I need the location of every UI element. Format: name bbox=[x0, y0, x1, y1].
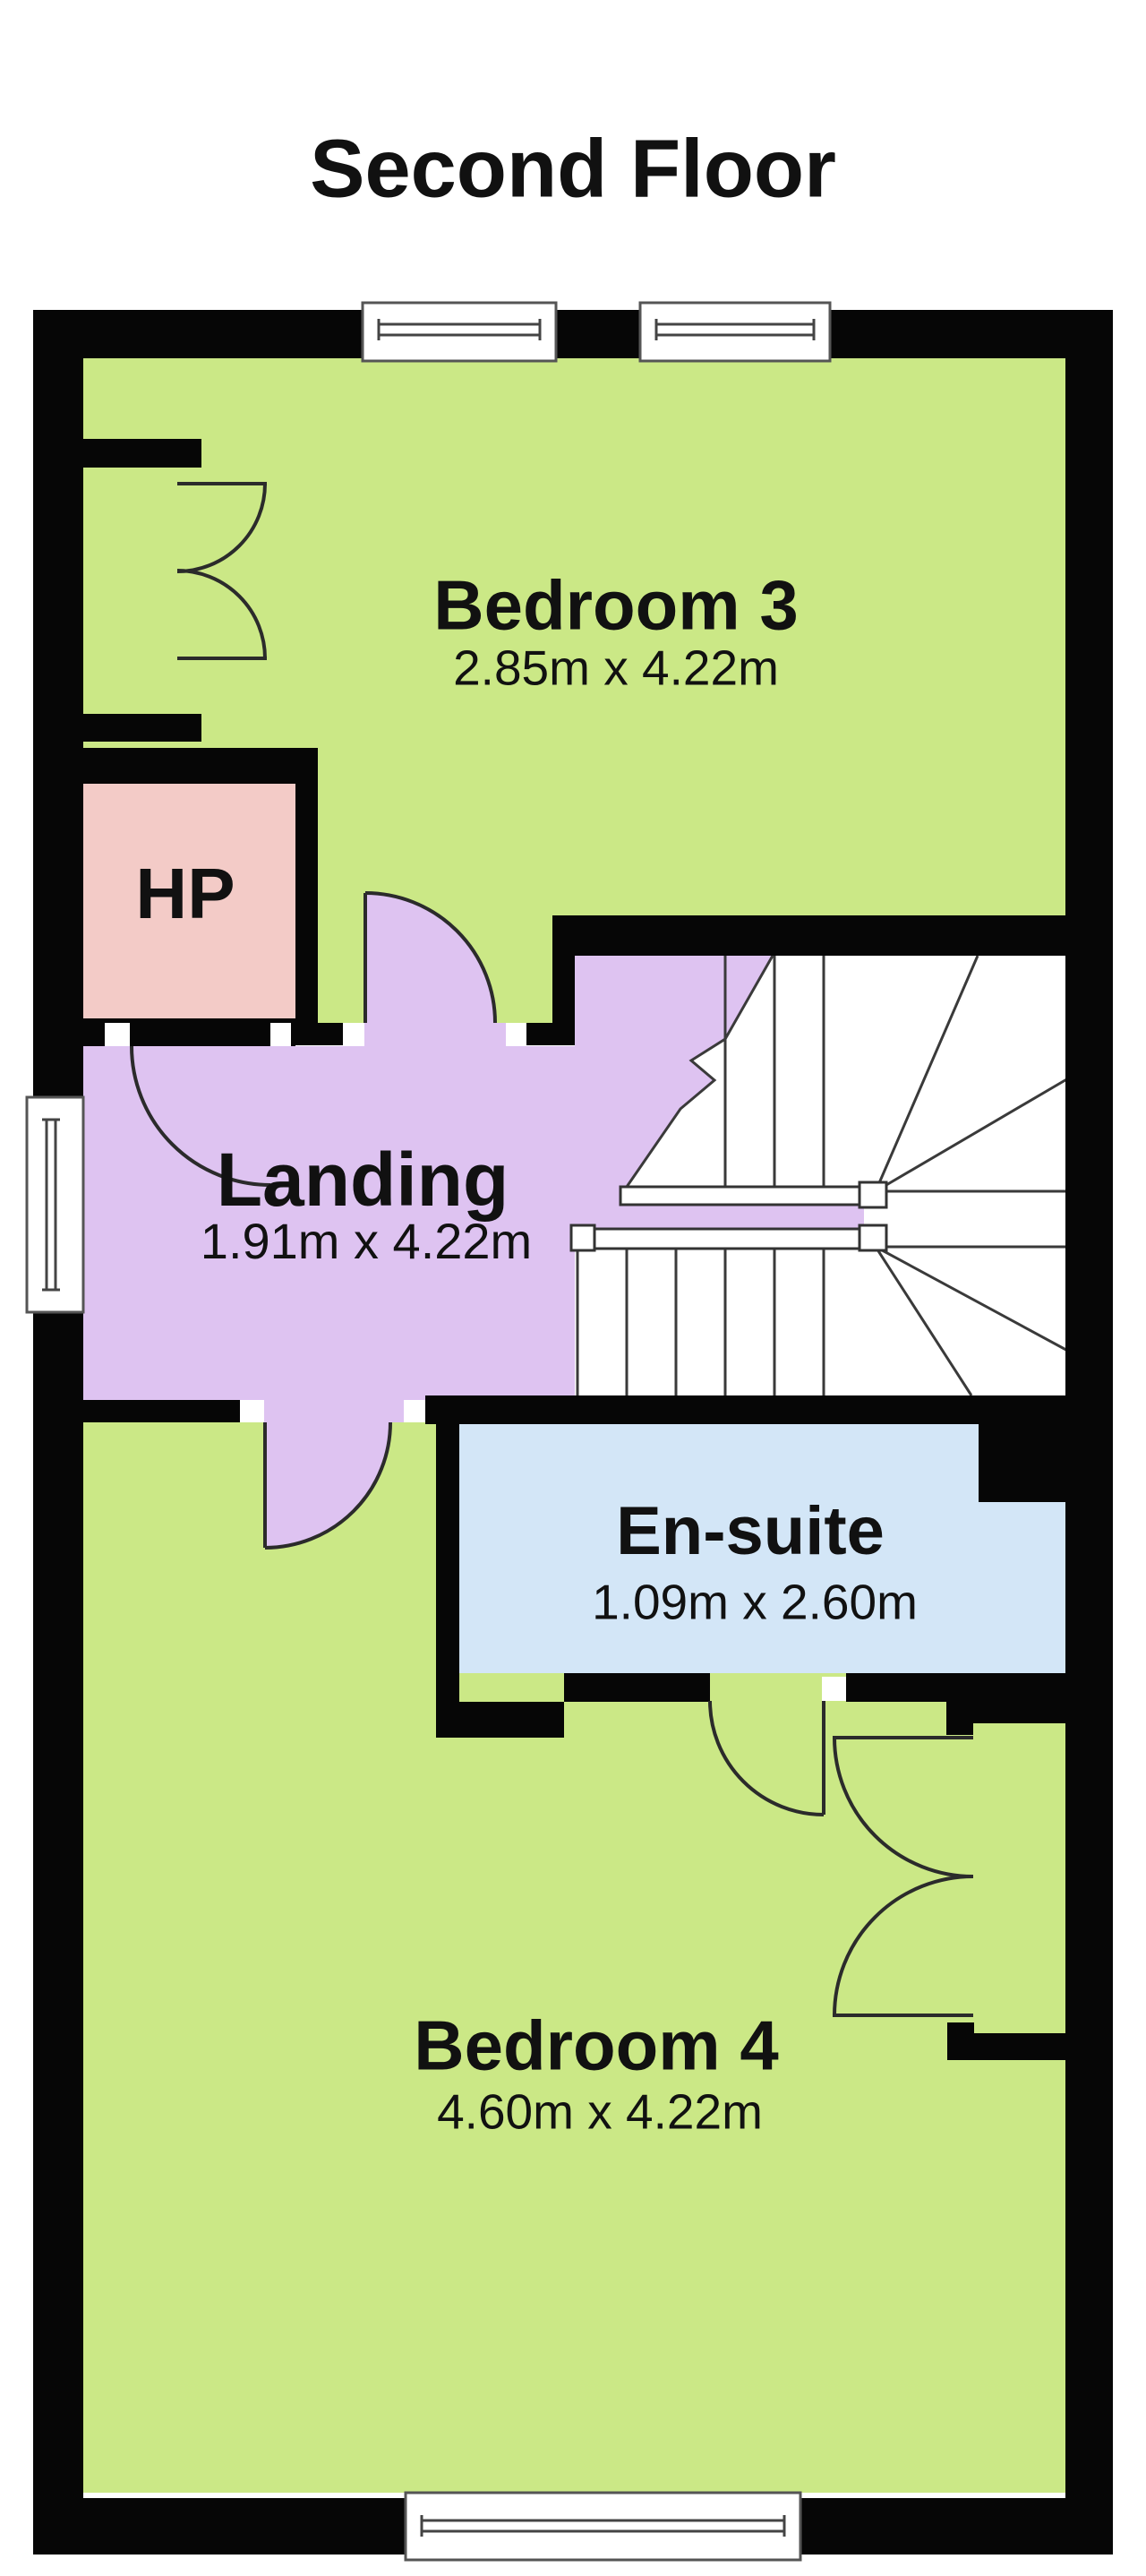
wall-closet-jamb-block bbox=[947, 2022, 974, 2060]
wall-wardrobe-stub-upper bbox=[83, 439, 201, 468]
wall-ensuite-bottom-b bbox=[564, 1673, 710, 1702]
label-ensuite-name: En-suite bbox=[616, 1493, 885, 1569]
window-top-1 bbox=[363, 303, 556, 361]
wall-ensuite-left bbox=[436, 1422, 459, 1738]
label-bedroom3-name: Bedroom 3 bbox=[433, 566, 798, 645]
wall-wardrobe-stub-lower bbox=[83, 714, 201, 742]
wall-stair-top bbox=[552, 915, 1074, 956]
label-bedroom3-dims: 2.85m x 4.22m bbox=[453, 640, 779, 696]
wall-ensuite-bottom-a bbox=[436, 1702, 564, 1738]
floor-plan-page: Second Floor Bedroom 3 2.85m x 4.22m HP … bbox=[0, 0, 1146, 2576]
wall-b3-landing-a bbox=[295, 1023, 343, 1045]
floor-plan: Second Floor Bedroom 3 2.85m x 4.22m HP … bbox=[0, 0, 1146, 2576]
wall-ensuite-bottom-d bbox=[973, 1673, 1065, 1723]
window-bottom bbox=[406, 2493, 800, 2560]
label-landing-name: Landing bbox=[217, 1138, 509, 1222]
label-ensuite-dims: 1.09m x 2.60m bbox=[592, 1575, 918, 1630]
wall-top bbox=[33, 310, 1113, 358]
window-left bbox=[27, 1097, 83, 1312]
wall-hp-top bbox=[83, 748, 318, 784]
wall-hp-right bbox=[295, 784, 318, 1023]
label-bedroom4-name: Bedroom 4 bbox=[414, 2006, 778, 2085]
wall-landing-b4-a bbox=[83, 1400, 240, 1422]
wall-ensuite-notch-block bbox=[979, 1395, 1074, 1502]
wall-closet-bottom-stub bbox=[974, 2033, 1065, 2060]
window-top-2 bbox=[640, 303, 830, 361]
label-landing-dims: 1.91m x 4.22m bbox=[201, 1213, 532, 1269]
wall-stair-bottom-ensuite-top bbox=[425, 1395, 1074, 1424]
wall-left bbox=[33, 310, 83, 2555]
label-bedroom4-dims: 4.60m x 4.22m bbox=[437, 2084, 763, 2140]
wall-door-jamb-block-top bbox=[946, 1701, 973, 1735]
label-hp: HP bbox=[135, 854, 235, 933]
page-title: Second Floor bbox=[310, 123, 836, 214]
